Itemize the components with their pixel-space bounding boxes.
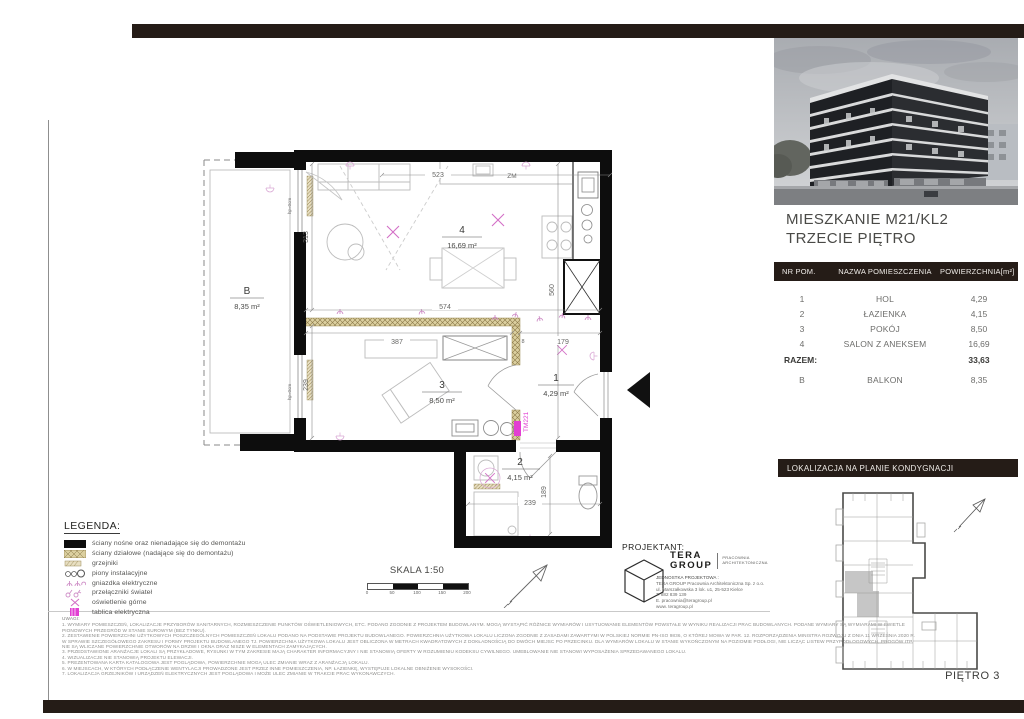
svg-text:560: 560	[549, 284, 556, 296]
catalog-sheet: B 8,35 m² ZM	[0, 0, 1024, 719]
bottom-frame-bar	[43, 700, 1024, 713]
salon-number: 4	[459, 225, 465, 236]
legend-item: piony instalacyjne	[64, 568, 324, 578]
svg-text:313: 313	[303, 231, 310, 243]
hol-number: 1	[553, 373, 559, 384]
sill-height-label-2: hp=0cm	[287, 384, 292, 400]
salon-area: 16,69 m²	[447, 241, 477, 250]
svg-text:574: 574	[439, 304, 451, 311]
col-area: POWIERZCHNIA[m²]	[940, 267, 1018, 276]
north-arrow-icon	[500, 558, 558, 608]
svg-text:239: 239	[524, 500, 536, 507]
switch-icon	[64, 588, 88, 598]
balcony-area: 8,35 m²	[234, 302, 260, 311]
table-total-row: RAZEM: 33,63	[774, 353, 1018, 368]
legend-item: ściany nośne oraz nienadające się do dem…	[64, 539, 324, 549]
loadbearing-wall-icon	[64, 540, 88, 548]
apartment-floor: TRZECIE PIĘTRO	[786, 229, 1016, 248]
tera-group-logotype: TERA GROUP PRACOWNIA ARCHITEKTONICZNA	[670, 551, 764, 570]
electrical-panel-label: TM221	[523, 411, 530, 432]
radiator-icon	[64, 560, 88, 567]
svg-text:239: 239	[303, 379, 310, 391]
legend: LEGENDA: ściany nośne oraz nienadające s…	[64, 516, 324, 617]
socket-icon	[64, 578, 88, 588]
pokoj-number: 3	[439, 380, 445, 391]
legend-item: gniazdka elektryczne	[64, 578, 324, 588]
hol-area: 4,29 m²	[543, 389, 569, 398]
table-row: 2 ŁAZIENKA 4,15	[774, 306, 1018, 321]
building-render-image	[774, 38, 1018, 205]
logo-divider	[717, 553, 718, 569]
design-unit-info: JEDNOSTKA PROJEKTOWA : TERA GROUP Pracow…	[656, 575, 781, 610]
table-row: 1 HOL 4,29	[774, 291, 1018, 306]
logo-line-2: GROUP	[670, 561, 712, 571]
svg-text:179: 179	[557, 339, 569, 346]
svg-text:189: 189	[541, 486, 548, 498]
pokoj-area: 8,50 m²	[429, 396, 455, 405]
dishwasher-label: ZM	[507, 173, 516, 180]
legend-item: oświetlenie górne	[64, 598, 324, 608]
scale-ticks: 0 50 100 150 200	[367, 590, 477, 598]
room-table: 1 HOL 4,29 2 ŁAZIENKA 4,15 3 POKÓJ 8,50 …	[774, 284, 1018, 387]
scale-bar	[367, 583, 469, 590]
legend-item: przełączniki świateł	[64, 588, 324, 598]
highlighted-unit	[845, 571, 879, 617]
table-row-balcony: B BALKON 8,35	[774, 372, 1018, 387]
balcony: B 8,35 m²	[204, 160, 290, 445]
col-name: NAZWA POMIESZCZENIA	[830, 267, 940, 276]
partition-wall-icon	[64, 550, 88, 558]
legend-item: grzejniki	[64, 559, 324, 569]
stair-shaft	[564, 260, 600, 314]
risers-icon	[64, 568, 88, 578]
table-row: 3 POKÓJ 8,50	[774, 321, 1018, 336]
scale-label: SKALA 1:50	[367, 565, 467, 576]
lazienka-area: 4,15 m²	[507, 473, 533, 482]
legend-item: ściany działowe (nadające się do demonta…	[64, 549, 324, 559]
logo-subtitle: PRACOWNIA ARCHITEKTONICZNA	[722, 551, 764, 565]
floor-number-label: PIĘTRO 3	[890, 670, 1000, 682]
apartment-id: MIESZKANIE M21/KL2	[786, 210, 1016, 229]
unit-floor	[294, 150, 612, 548]
keyplan-north-arrow-icon	[954, 499, 985, 532]
sill-height-label-1: hp=0cm	[287, 198, 292, 214]
svg-text:523: 523	[432, 172, 444, 179]
room-table-header: NR POM. NAZWA POMIESZCZENIA POWIERZCHNIA…	[774, 262, 1018, 281]
floor-plan-drawing: B 8,35 m² ZM	[190, 140, 670, 560]
key-plan	[813, 483, 993, 695]
electrical-panel-symbol	[514, 421, 521, 436]
col-nr: NR POM.	[774, 267, 830, 276]
table-row: 4 SALON Z ANEKSEM 16,69	[774, 337, 1018, 352]
left-frame-rule	[48, 120, 49, 700]
lazienka-number: 2	[517, 457, 523, 468]
legend-title: LEGENDA:	[64, 520, 120, 534]
balcony-number: B	[244, 286, 251, 297]
svg-text:8: 8	[521, 339, 524, 345]
top-frame-bar	[132, 24, 1024, 38]
apartment-title: MIESZKANIE M21/KL2 TRZECIE PIĘTRO	[786, 210, 1016, 248]
entrance-arrow	[627, 372, 650, 408]
svg-text:387: 387	[391, 339, 403, 346]
location-section-header: LOKALIZACJA NA PLANIE KONDYGNACJI	[778, 459, 1018, 477]
ceiling-light-icon	[64, 598, 88, 607]
